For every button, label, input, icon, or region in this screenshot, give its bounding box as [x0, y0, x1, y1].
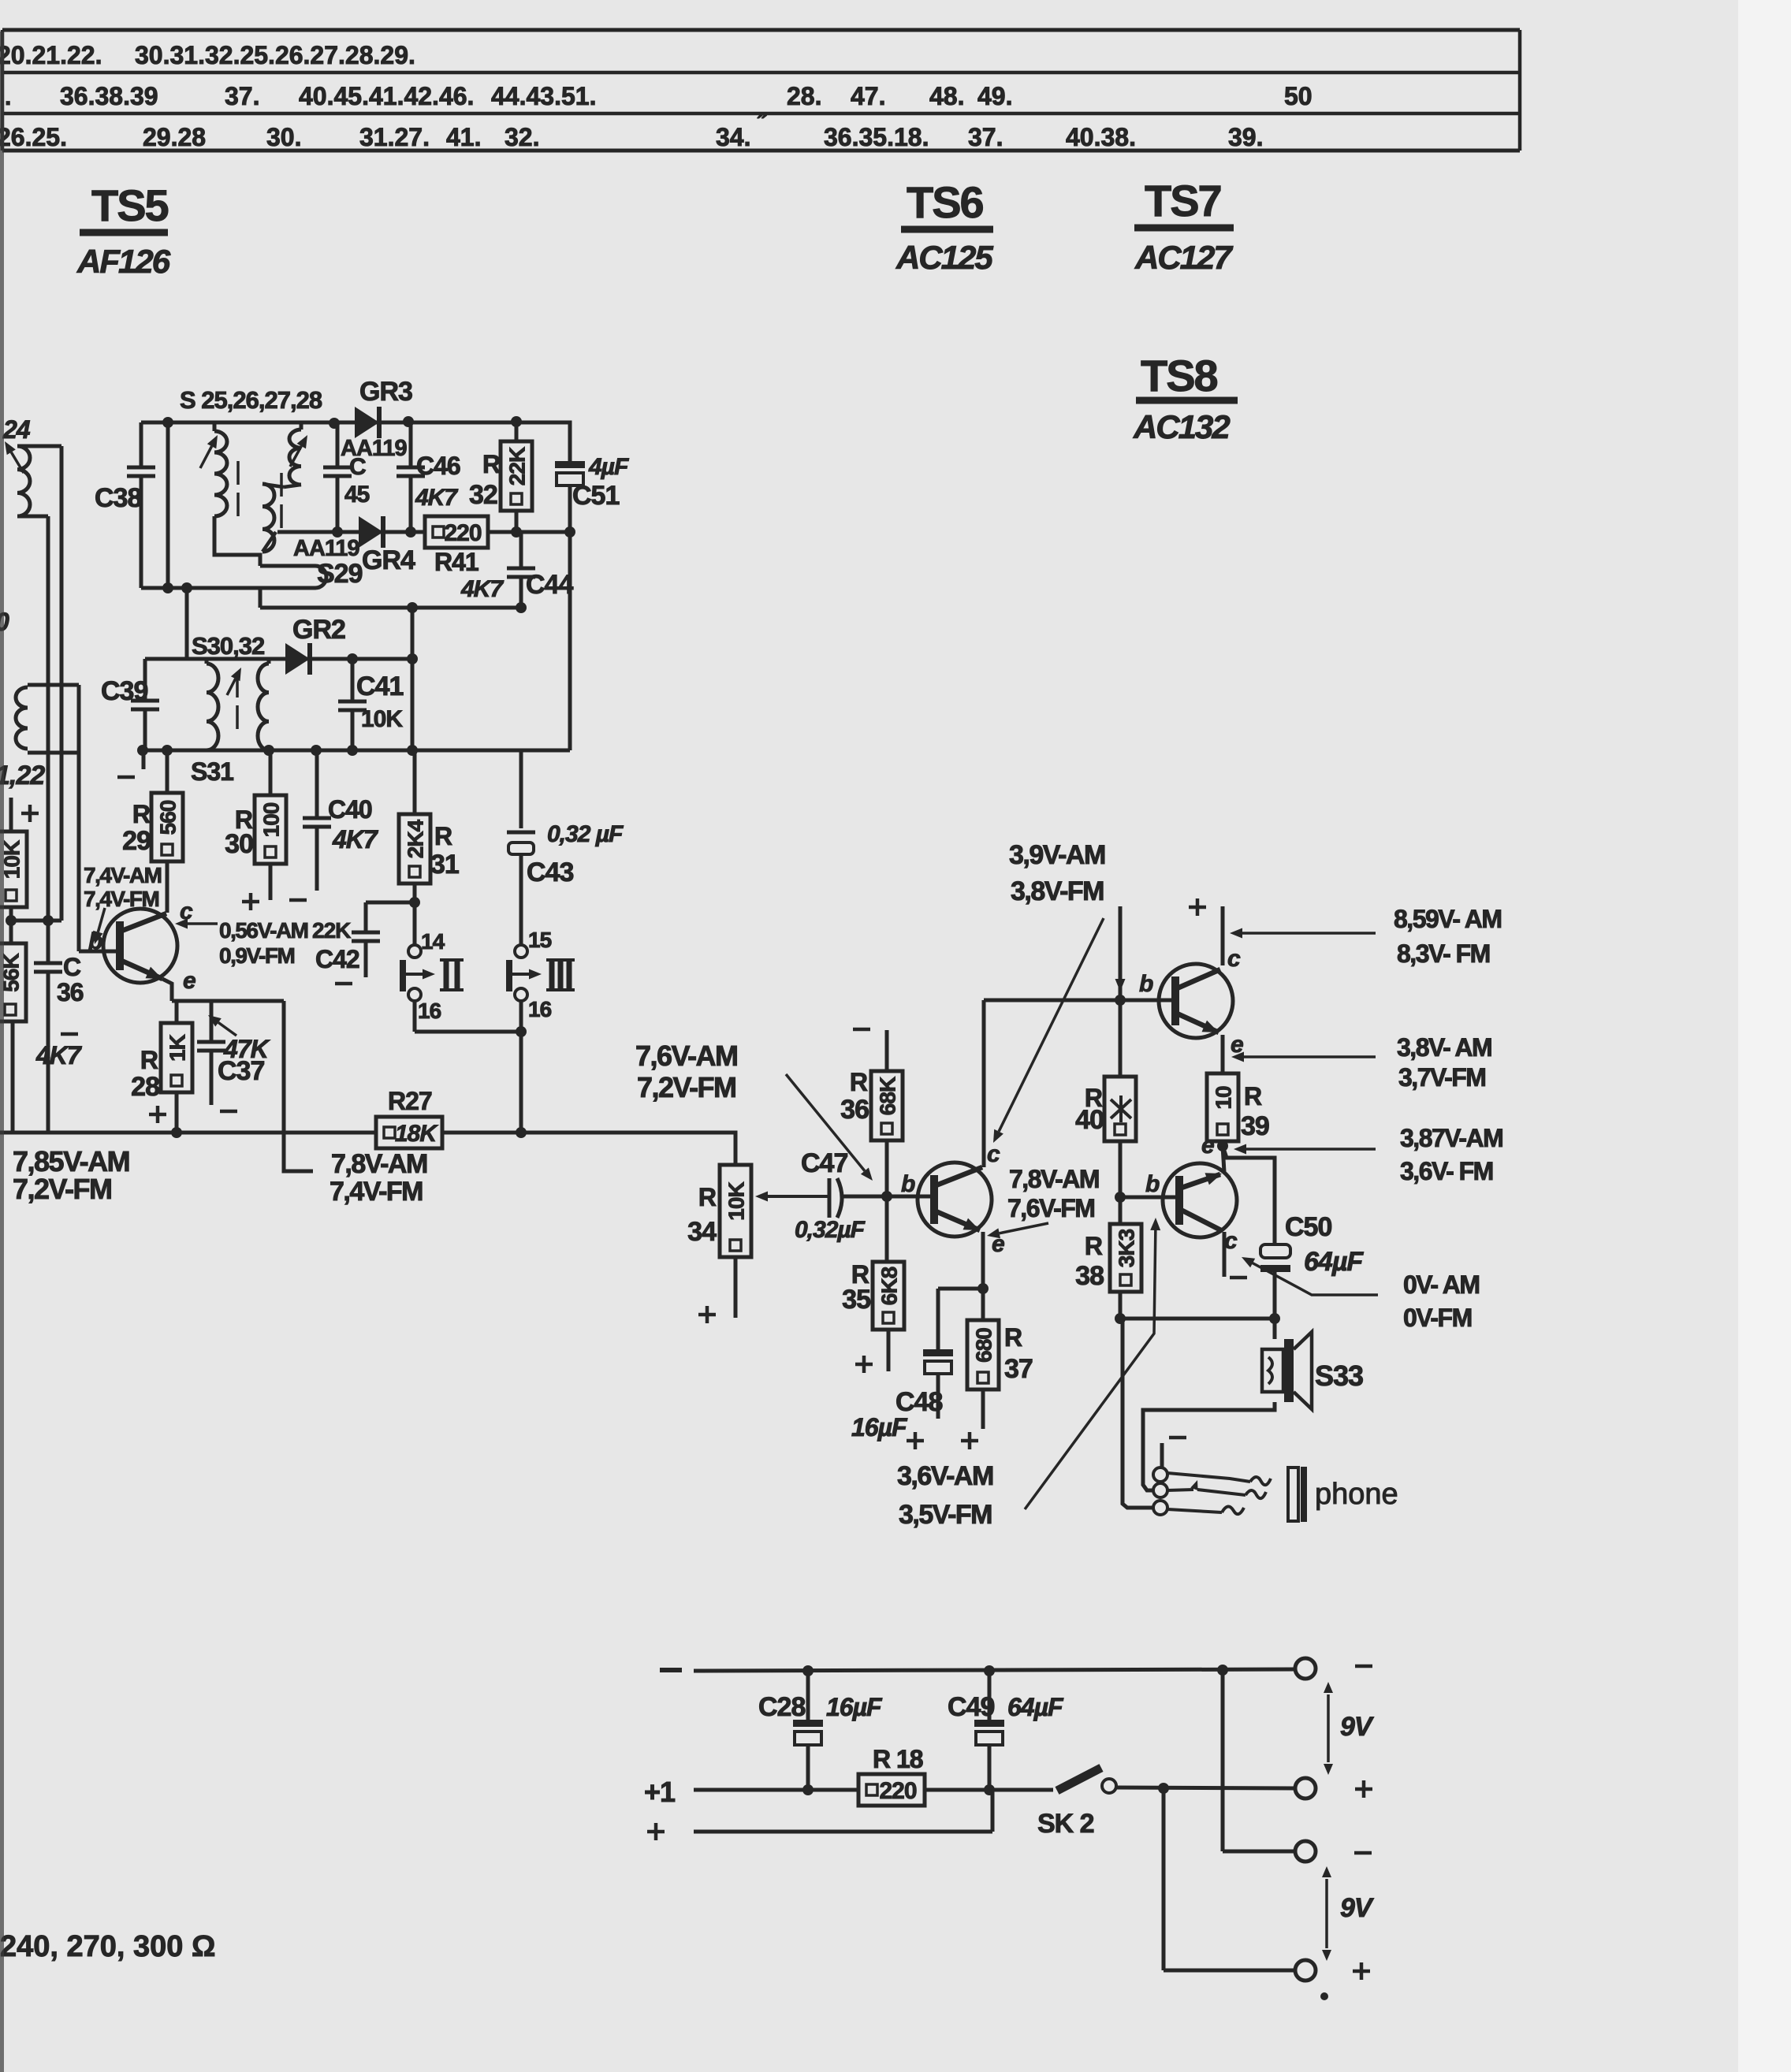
svg-text:7,2V-FM: 7,2V-FM — [13, 1173, 112, 1205]
svg-text:R: R — [1085, 1232, 1103, 1260]
svg-text:C39: C39 — [101, 676, 147, 706]
svg-text:28.: 28. — [787, 82, 821, 110]
svg-text:49.: 49. — [977, 82, 1012, 110]
svg-text:35: 35 — [842, 1285, 870, 1315]
svg-text:R 18: R 18 — [873, 1745, 923, 1773]
svg-text:30.31.32.25.26.27.28.29.: 30.31.32.25.26.27.28.29. — [135, 41, 415, 69]
svg-text:R: R — [132, 800, 151, 828]
svg-text:3,6V-AM: 3,6V-AM — [897, 1461, 993, 1491]
svg-text:3,5V-FM: 3,5V-FM — [899, 1500, 992, 1530]
svg-text:c: c — [1224, 1228, 1238, 1254]
svg-text:31.27.: 31.27. — [359, 123, 430, 151]
svg-text:16µF: 16µF — [826, 1693, 883, 1721]
svg-text:GR2: GR2 — [292, 615, 345, 645]
svg-text:7,4V-FM: 7,4V-FM — [84, 887, 158, 911]
svg-text:9V: 9V — [1340, 1712, 1375, 1742]
svg-text:3K3: 3K3 — [1115, 1229, 1139, 1267]
svg-text:24: 24 — [2, 415, 31, 444]
svg-text:R: R — [850, 1068, 868, 1096]
svg-text:32.: 32. — [505, 123, 539, 151]
svg-text:6K8: 6K8 — [877, 1267, 902, 1305]
svg-text:C44: C44 — [526, 570, 573, 600]
svg-text:R: R — [434, 822, 452, 850]
svg-text:39.: 39. — [1228, 123, 1263, 151]
svg-text:30.: 30. — [266, 123, 301, 151]
svg-text:TS7: TS7 — [1145, 176, 1221, 225]
svg-text:S 25,26,27,28: S 25,26,27,28 — [180, 386, 322, 414]
svg-text:9V: 9V — [1340, 1893, 1375, 1923]
svg-text:2K4: 2K4 — [404, 819, 428, 858]
svg-text:14: 14 — [421, 929, 445, 954]
svg-text:220: 220 — [444, 520, 481, 546]
svg-text:560: 560 — [156, 800, 181, 835]
svg-text:36: 36 — [840, 1095, 869, 1125]
svg-text:680: 680 — [972, 1328, 996, 1363]
svg-text:AF126: AF126 — [76, 243, 171, 280]
svg-text:3,6V- FM: 3,6V- FM — [1400, 1157, 1493, 1185]
svg-text:C28: C28 — [758, 1692, 805, 1722]
svg-text:4K7: 4K7 — [35, 1041, 83, 1069]
svg-text:.: . — [5, 84, 10, 110]
svg-text:C: C — [63, 953, 81, 981]
svg-text:1K: 1K — [166, 1034, 190, 1062]
svg-text:S31: S31 — [191, 757, 233, 786]
svg-text:4µF: 4µF — [588, 454, 629, 480]
svg-text:40.45.41.42.46.: 40.45.41.42.46. — [299, 82, 474, 110]
svg-text:1,22: 1,22 — [0, 761, 45, 790]
svg-text:R41: R41 — [434, 548, 478, 576]
svg-text:C46: C46 — [416, 452, 460, 480]
svg-text:48.: 48. — [929, 82, 964, 110]
svg-text:8,59V- AM: 8,59V- AM — [1394, 905, 1501, 933]
svg-text:GR3: GR3 — [359, 377, 412, 407]
svg-text:b: b — [1145, 1171, 1160, 1197]
svg-text:22K: 22K — [505, 447, 530, 485]
svg-text:C40: C40 — [328, 795, 372, 824]
svg-text:44.43.51.: 44.43.51. — [491, 82, 596, 110]
svg-text:b: b — [1139, 971, 1153, 997]
svg-text:41.: 41. — [446, 123, 481, 151]
svg-text:e: e — [183, 968, 195, 994]
svg-text:R: R — [1004, 1323, 1022, 1352]
svg-text:AC125: AC125 — [895, 239, 993, 276]
svg-text:40.38.: 40.38. — [1066, 123, 1136, 151]
svg-text:C42: C42 — [315, 945, 359, 973]
svg-text:37: 37 — [1004, 1354, 1033, 1384]
svg-text:0,9V-FM: 0,9V-FM — [219, 943, 294, 968]
svg-text:3,8V-FM: 3,8V-FM — [1011, 876, 1104, 906]
svg-text:26.25.: 26.25. — [0, 123, 67, 151]
svg-text:29.28: 29.28 — [143, 123, 206, 151]
svg-text:e: e — [1201, 1133, 1214, 1159]
svg-text:28: 28 — [131, 1072, 159, 1102]
svg-text:50: 50 — [1284, 82, 1313, 110]
svg-text:R: R — [482, 450, 501, 478]
svg-text:C41: C41 — [356, 671, 403, 701]
svg-text:36.35.18.: 36.35.18. — [824, 123, 929, 151]
svg-text:0V- AM: 0V- AM — [1403, 1270, 1480, 1299]
svg-text:10: 10 — [1212, 1086, 1236, 1110]
svg-text:64µF: 64µF — [1304, 1247, 1364, 1277]
svg-text:c: c — [180, 898, 193, 924]
svg-text:40: 40 — [1075, 1105, 1104, 1135]
svg-text:220: 220 — [879, 1778, 916, 1804]
svg-text:30: 30 — [225, 829, 253, 859]
svg-text:c: c — [987, 1141, 1000, 1167]
svg-text:18K: 18K — [395, 1121, 438, 1147]
svg-text:100: 100 — [259, 802, 284, 837]
svg-text:16µF: 16µF — [851, 1413, 908, 1441]
svg-text:C49: C49 — [948, 1692, 994, 1722]
svg-text:37.: 37. — [225, 82, 259, 110]
svg-text:38: 38 — [1075, 1261, 1104, 1291]
svg-text:16: 16 — [418, 999, 441, 1023]
svg-text:C50: C50 — [1285, 1212, 1331, 1242]
svg-text:0,32µF: 0,32µF — [795, 1217, 866, 1243]
svg-text:7,8V-AM: 7,8V-AM — [1009, 1165, 1099, 1193]
svg-text:TS8: TS8 — [1141, 351, 1218, 400]
svg-text:3,8V- AM: 3,8V- AM — [1397, 1033, 1491, 1062]
svg-text:C47: C47 — [801, 1148, 847, 1178]
svg-text:7,6V-AM: 7,6V-AM — [635, 1040, 738, 1072]
svg-text:7,4V-FM: 7,4V-FM — [330, 1177, 423, 1207]
svg-text:37.: 37. — [968, 123, 1003, 151]
svg-text:7,8V-AM: 7,8V-AM — [331, 1149, 427, 1179]
svg-text:R: R — [698, 1183, 717, 1211]
svg-text:3,9V-AM: 3,9V-AM — [1009, 840, 1105, 870]
svg-text:C43: C43 — [527, 857, 573, 887]
svg-text:c: c — [1227, 946, 1241, 972]
svg-text:34.: 34. — [716, 123, 750, 151]
svg-text:TS6: TS6 — [907, 177, 984, 227]
svg-text:C: C — [349, 454, 366, 480]
svg-text:SK 2: SK 2 — [1037, 1809, 1094, 1839]
svg-text:240, 270, 300 Ω: 240, 270, 300 Ω — [0, 1930, 215, 1963]
svg-text:34: 34 — [687, 1217, 717, 1247]
svg-text:0,56V-AM: 0,56V-AM — [219, 918, 308, 943]
svg-text:AC127: AC127 — [1134, 239, 1233, 276]
svg-text:TS5: TS5 — [91, 180, 169, 230]
svg-text:7,4V-AM: 7,4V-AM — [84, 863, 162, 887]
svg-text:C51: C51 — [572, 481, 619, 511]
svg-text:3,87V-AM: 3,87V-AM — [1400, 1124, 1502, 1152]
svg-text:15: 15 — [528, 928, 552, 952]
svg-text:0V-FM: 0V-FM — [1403, 1304, 1472, 1332]
svg-text:C38: C38 — [95, 483, 141, 513]
svg-text:S33: S33 — [1315, 1360, 1363, 1392]
svg-text:7,2V-FM: 7,2V-FM — [637, 1071, 736, 1103]
svg-text:AC132: AC132 — [1133, 408, 1230, 445]
svg-text:R27: R27 — [388, 1087, 432, 1115]
svg-text:AA119: AA119 — [293, 536, 360, 561]
svg-text:29: 29 — [122, 826, 151, 856]
svg-text:22K: 22K — [312, 918, 351, 943]
svg-text:31: 31 — [430, 850, 459, 880]
svg-text:8,3V- FM: 8,3V- FM — [1397, 939, 1490, 968]
svg-text:10K: 10K — [361, 706, 403, 732]
svg-text:R: R — [1244, 1082, 1262, 1110]
svg-text:0,32 µF: 0,32 µF — [547, 821, 624, 847]
svg-text:45: 45 — [344, 482, 370, 508]
svg-text:b: b — [901, 1171, 915, 1197]
svg-text:GR4: GR4 — [362, 545, 415, 575]
svg-text:64µF: 64µF — [1007, 1693, 1064, 1721]
svg-text:39: 39 — [1241, 1111, 1269, 1141]
svg-text:20.21.22.: 20.21.22. — [0, 41, 102, 69]
svg-text:4K7: 4K7 — [332, 825, 379, 854]
svg-text:4K7: 4K7 — [415, 485, 458, 511]
svg-text:10K: 10K — [724, 1182, 749, 1221]
svg-text:R: R — [140, 1046, 158, 1074]
svg-text:S30,32: S30,32 — [192, 632, 264, 660]
svg-text:32: 32 — [469, 480, 497, 510]
svg-text:36: 36 — [57, 978, 84, 1006]
svg-text:phone: phone — [1315, 1478, 1398, 1511]
svg-text:47K: 47K — [223, 1035, 271, 1063]
svg-text:S29: S29 — [317, 559, 363, 589]
svg-text:7,6V-FM: 7,6V-FM — [1007, 1194, 1094, 1222]
svg-text:3,7V-FM: 3,7V-FM — [1398, 1063, 1485, 1092]
svg-text:68K: 68K — [876, 1077, 900, 1115]
svg-text:+1: +1 — [644, 1776, 676, 1808]
svg-text:16: 16 — [528, 997, 552, 1021]
svg-text:36.38.39: 36.38.39 — [60, 82, 158, 110]
svg-text:4K7: 4K7 — [460, 576, 504, 602]
svg-text:47.: 47. — [851, 82, 885, 110]
